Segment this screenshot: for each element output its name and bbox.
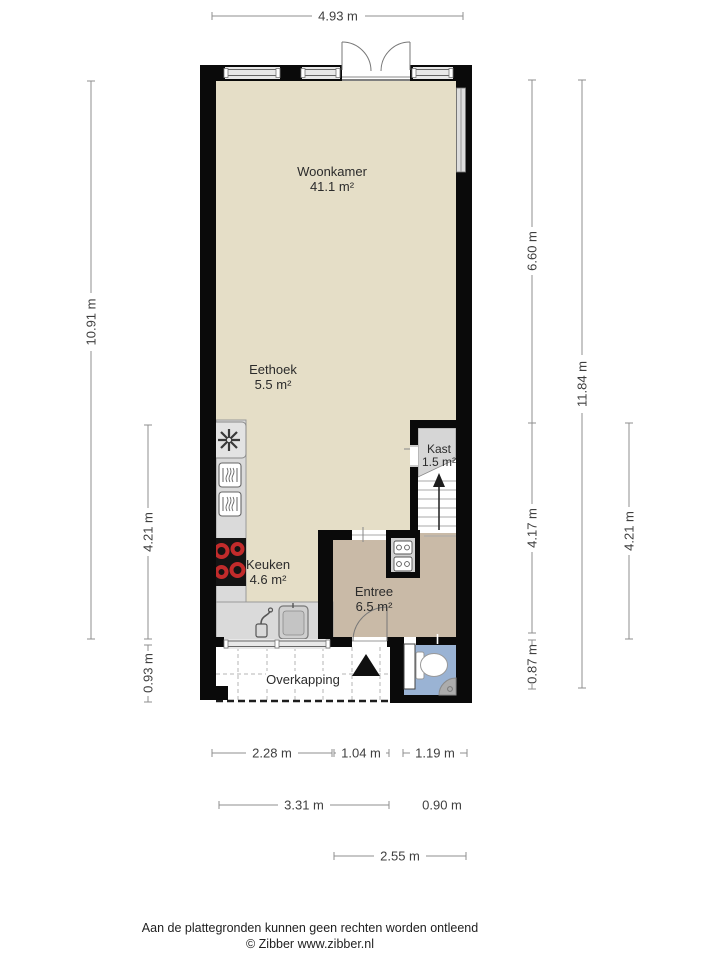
cooktop-icon — [212, 538, 246, 586]
dim-bottom-row1: 2.28 m 1.04 m 1.19 m — [212, 745, 467, 761]
keuken-area: 4.6 m² — [250, 572, 288, 587]
window-top — [224, 67, 453, 79]
dim-row1-b: 1.04 m — [341, 746, 381, 761]
dim-row1-c: 1.19 m — [415, 746, 455, 761]
dim-bottom-row3: 2.55 m — [334, 848, 466, 864]
eethoek-area: 5.5 m² — [255, 377, 293, 392]
footer: Aan de plattegronden kunnen geen rechten… — [142, 921, 478, 951]
wall-stairs-left — [410, 467, 418, 540]
entrance-arrow-icon — [352, 654, 380, 676]
dim-left-total: 10.91 m — [84, 81, 99, 639]
oven-icon — [219, 492, 241, 516]
dim-right-toilet-label: 0.87 m — [525, 644, 540, 684]
kast-label: Kast — [427, 442, 452, 456]
meter-cupboard — [391, 538, 415, 572]
dim-right-total-label: 11.84 m — [575, 361, 590, 407]
kast-area: 1.5 m² — [422, 455, 456, 469]
dim-left-overkapping-label: 0.93 m — [141, 653, 156, 693]
wall-toilet-bottom — [390, 695, 472, 703]
floorplan-drawing: Woonkamer 41.1 m² Eethoek 5.5 m² Keuken … — [0, 0, 720, 960]
dim-right-stairs: 4.21 m — [622, 423, 637, 639]
dim-left-kitchen-label: 4.21 m — [141, 512, 156, 552]
wall-toilet-top — [416, 637, 456, 645]
dim-right-total: 11.84 m — [575, 80, 590, 688]
wall-keuken-entree — [318, 530, 333, 647]
fan-icon — [212, 422, 246, 458]
oven-icon — [219, 463, 241, 487]
dim-bottom-row2: 3.31 m 0.90 m — [219, 797, 467, 813]
wall-bottom-stub-left — [216, 637, 224, 647]
footer-credit: © Zibber www.zibber.nl — [246, 937, 374, 951]
dim-right-toilet: 0.87 m — [525, 640, 540, 689]
wall-entree-top-left — [333, 530, 352, 540]
wall-foot-bottom-left — [216, 686, 228, 700]
wall-toilet-left — [390, 637, 404, 703]
wall-bottom-mid — [330, 637, 352, 647]
dim-right-stairs-label: 4.21 m — [622, 511, 637, 551]
woonkamer-label: Woonkamer — [297, 164, 368, 179]
dim-right-upper-label: 6.60 m — [525, 231, 540, 271]
dim-left-overkapping: 0.93 m — [141, 645, 156, 702]
sink-icon — [279, 603, 308, 639]
eethoek-label: Eethoek — [249, 362, 297, 377]
double-door-top — [342, 42, 410, 81]
dim-right-lower: 4.17 m — [525, 423, 540, 633]
dim-row3-a: 2.55 m — [380, 849, 420, 864]
wall-left — [200, 65, 216, 700]
keuken-label: Keuken — [246, 557, 290, 572]
woonkamer-area: 41.1 m² — [310, 179, 355, 194]
dim-right-upper: 6.60 m — [525, 80, 540, 423]
dim-top-width: 4.93 m — [212, 8, 463, 24]
footer-disclaimer: Aan de plattegronden kunnen geen rechten… — [142, 921, 478, 935]
dim-row2-a: 3.31 m — [284, 798, 324, 813]
dim-row2-b: 0.90 m — [422, 798, 462, 813]
kitchen-counter-bottom — [216, 602, 333, 641]
overkapping-label: Overkapping — [266, 672, 340, 687]
dim-right-lower-label: 4.17 m — [525, 508, 540, 548]
floorplan-page: Woonkamer 41.1 m² Eethoek 5.5 m² Keuken … — [0, 0, 720, 960]
wall-kast-left-upper — [410, 420, 418, 445]
dim-row1-a: 2.28 m — [252, 746, 292, 761]
window-kitchen — [224, 639, 330, 649]
window-right — [457, 88, 466, 172]
dim-left-total-label: 10.91 m — [84, 299, 99, 346]
dim-top-width-label: 4.93 m — [318, 9, 358, 24]
entree-area: 6.5 m² — [356, 599, 394, 614]
dim-left-kitchen: 4.21 m — [141, 425, 156, 639]
entree-label: Entree — [355, 584, 393, 599]
